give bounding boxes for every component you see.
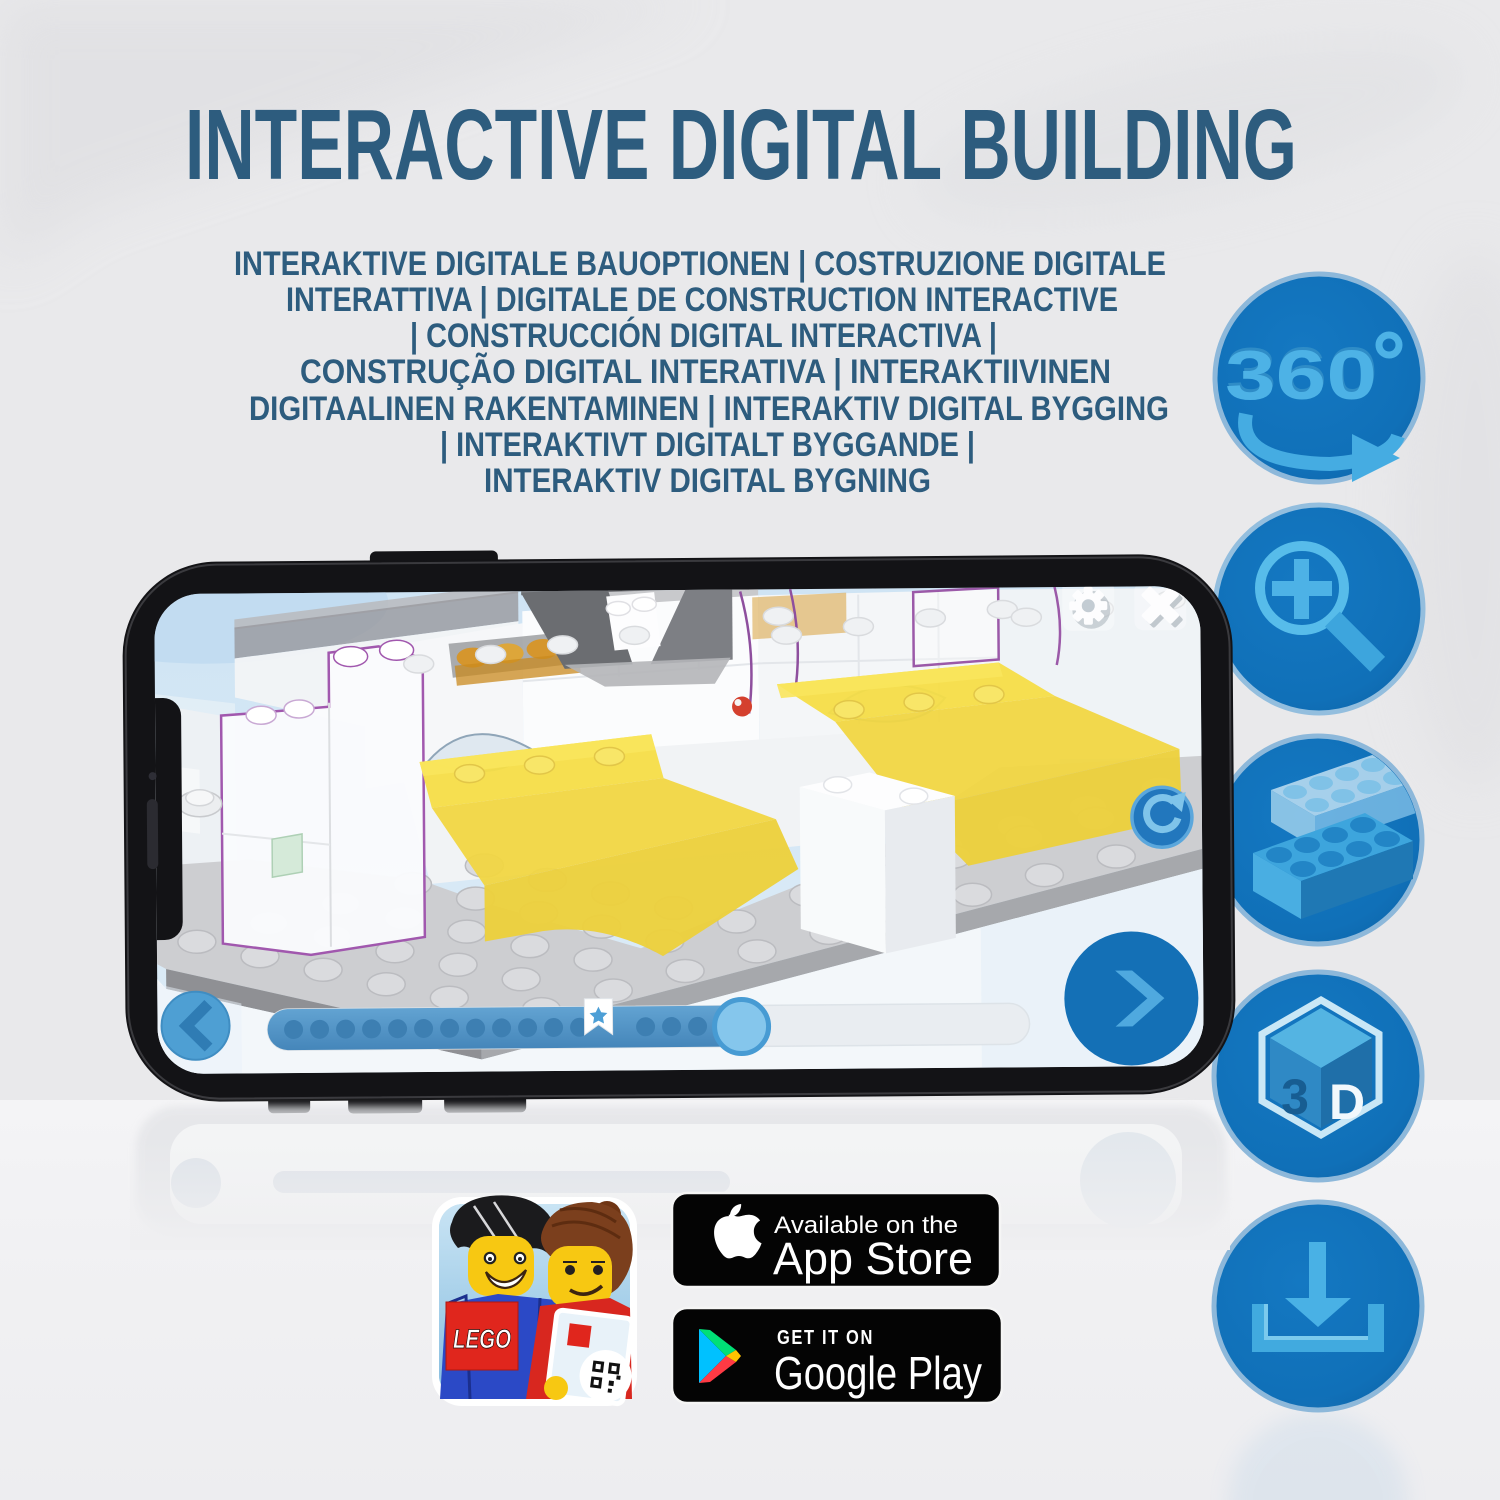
svg-text:INTERATTIVA | DIGITALE DE CONS: INTERATTIVA | DIGITALE DE CONSTRUCTION I…: [286, 281, 1118, 319]
svg-text:| INTERAKTIVT DIGITALT BYGGAND: | INTERAKTIVT DIGITALT BYGGANDE |: [440, 426, 975, 464]
svg-text:D: D: [1329, 1074, 1365, 1130]
svg-text:DIGITAALINEN RAKENTAMINEN | IN: DIGITAALINEN RAKENTAMINEN | INTERAKTIV D…: [249, 390, 1169, 428]
svg-text:360: 360: [1225, 336, 1377, 414]
svg-text:CONSTRUÇÃO DIGITAL INTERATIVA: CONSTRUÇÃO DIGITAL INTERATIVA | INTERAKT…: [300, 353, 1111, 391]
svg-text:INTERAKTIV DIGITAL BYGNING: INTERAKTIV DIGITAL BYGNING: [484, 462, 931, 500]
svg-text:| CONSTRUCCIÓN DIGITAL INTERAC: | CONSTRUCCIÓN DIGITAL INTERACTIVA |: [410, 317, 997, 355]
svg-text:Google Play: Google Play: [774, 1347, 982, 1399]
svg-text:INTERACTIVE DIGITAL BUILDING: INTERACTIVE DIGITAL BUILDING: [185, 89, 1297, 201]
svg-text:3: 3: [1281, 1069, 1309, 1125]
svg-text:App Store: App Store: [773, 1233, 973, 1284]
svg-text:INTERAKTIVE DIGITALE BAUOPTION: INTERAKTIVE DIGITALE BAUOPTIONEN | COSTR…: [234, 245, 1166, 283]
svg-text:LEGO: LEGO: [453, 1324, 511, 1354]
svg-text:GET IT ON: GET IT ON: [777, 1327, 874, 1349]
